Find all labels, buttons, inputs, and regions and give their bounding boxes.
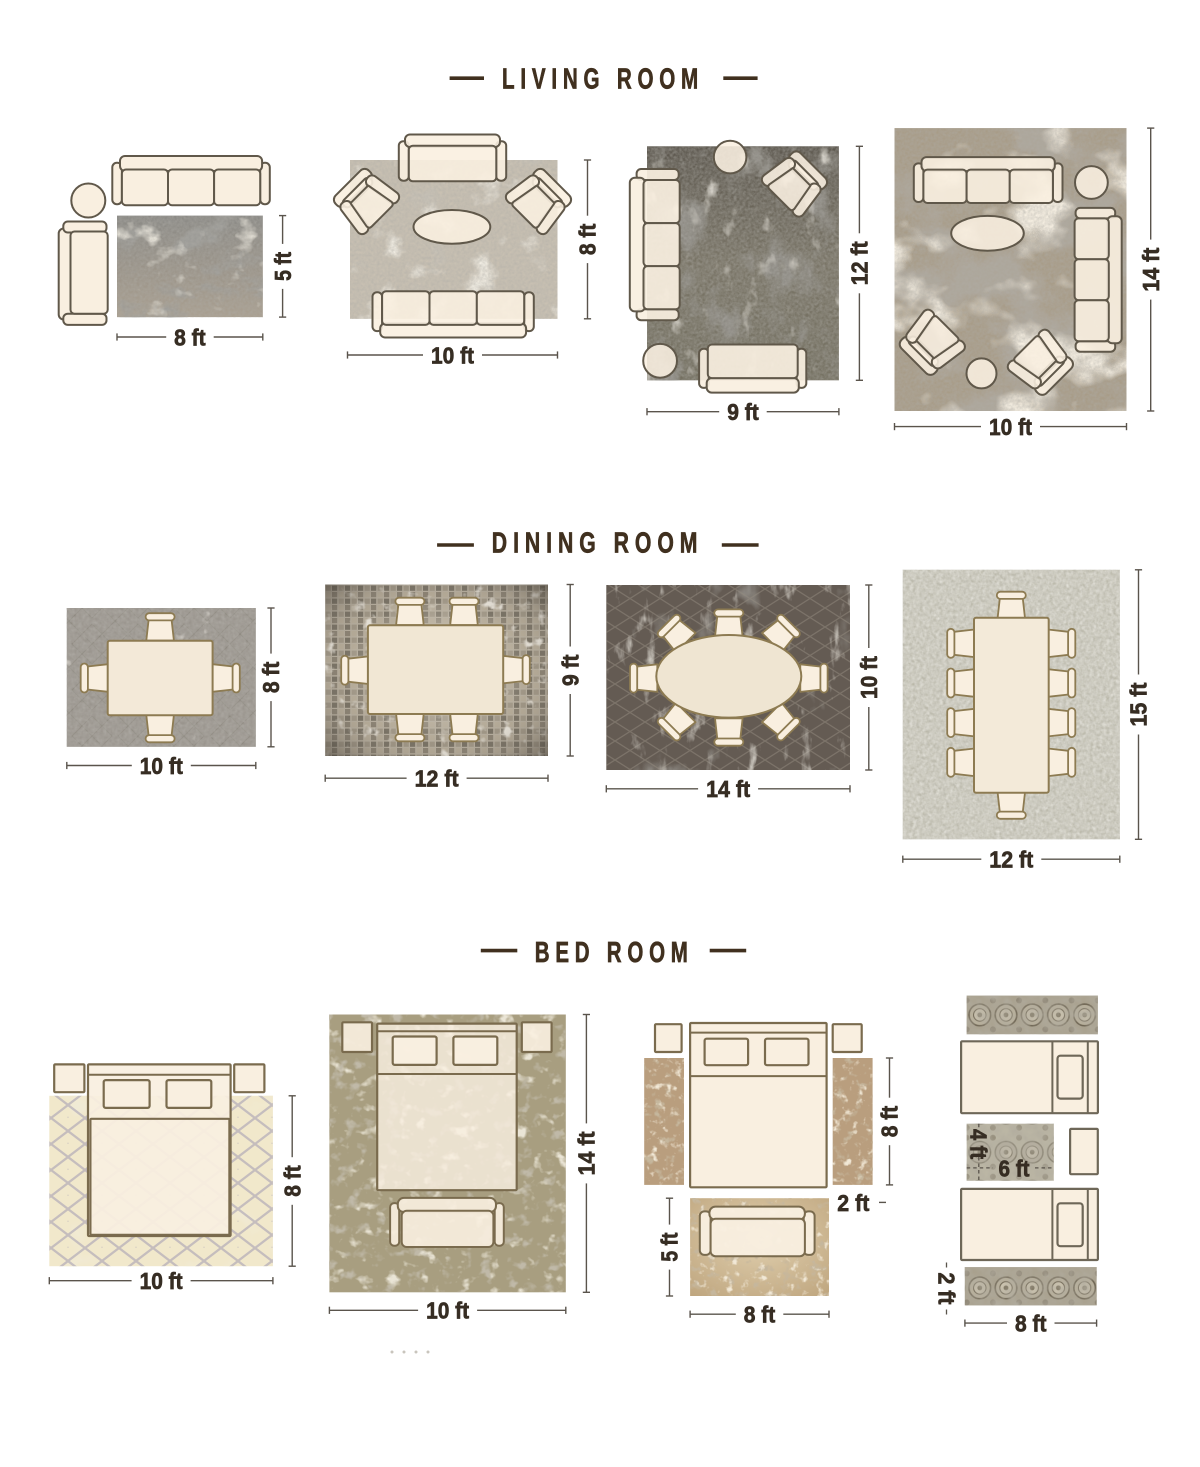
svg-text:8 ft: 8 ft (1015, 1311, 1047, 1337)
svg-text:DINING ROOM: DINING ROOM (492, 528, 704, 560)
svg-text:9 ft: 9 ft (727, 399, 759, 425)
svg-text:12 ft: 12 ft (415, 766, 459, 792)
svg-text:14 ft: 14 ft (1138, 247, 1164, 291)
svg-text:LIVING ROOM: LIVING ROOM (502, 64, 704, 96)
svg-text:4 ft: 4 ft (966, 1129, 992, 1159)
svg-text:15 ft: 15 ft (1126, 682, 1152, 726)
svg-text:10 ft: 10 ft (426, 1298, 469, 1324)
svg-text:10 ft: 10 ft (140, 1268, 183, 1294)
svg-text:10 ft: 10 ft (989, 414, 1032, 440)
svg-text:12 ft: 12 ft (989, 847, 1033, 873)
svg-text:8 ft: 8 ft (744, 1302, 776, 1328)
svg-text:5 ft: 5 ft (657, 1232, 683, 1261)
svg-text:2 ft: 2 ft (837, 1190, 869, 1216)
svg-text:8 ft: 8 ft (877, 1106, 903, 1138)
svg-text:6 ft: 6 ft (999, 1155, 1030, 1181)
svg-text:12 ft: 12 ft (847, 241, 873, 285)
svg-text:5 ft: 5 ft (270, 252, 296, 281)
svg-text:BED ROOM: BED ROOM (535, 937, 694, 969)
svg-text:8 ft: 8 ft (258, 661, 284, 693)
svg-text:2 ft: 2 ft (933, 1273, 959, 1305)
svg-text:14 ft: 14 ft (706, 776, 750, 802)
svg-text:8 ft: 8 ft (174, 324, 206, 350)
svg-text:10 ft: 10 ft (140, 753, 183, 779)
svg-text:9 ft: 9 ft (557, 654, 583, 686)
svg-text:10 ft: 10 ft (856, 656, 882, 699)
svg-text:8 ft: 8 ft (279, 1165, 305, 1197)
svg-text:8 ft: 8 ft (575, 223, 601, 255)
svg-text:14 ft: 14 ft (574, 1131, 600, 1175)
svg-text:10 ft: 10 ft (431, 342, 474, 368)
